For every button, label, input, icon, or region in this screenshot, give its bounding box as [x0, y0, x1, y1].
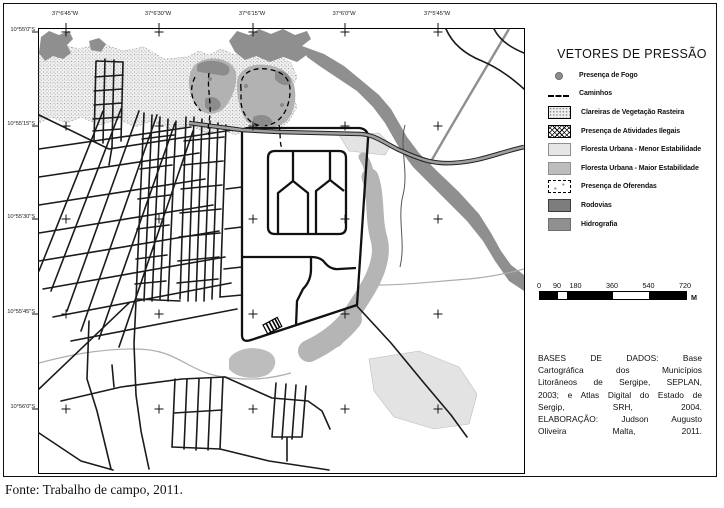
credit-line: Litorâneos de Sergipe, SEPLAN, [538, 376, 702, 388]
source-note: Fonte: Trabalho de campo, 2011. [5, 482, 183, 498]
axis-label-latitude: 10°55'0"S [2, 27, 35, 33]
medium-gray-swatch-icon [548, 162, 571, 175]
data-sources-text: BASES DE DADOS: Base Cartográfica dos Mu… [538, 352, 702, 437]
dashed-box-swatch-icon [548, 180, 571, 193]
legend-item-label: Floresta Urbana - Menor Estabilidade [581, 146, 701, 153]
credit-line: BASES DE DADOS: Base [538, 352, 702, 364]
legend-item-label: Rodovias [581, 202, 612, 209]
legend-item-hidrografia: Hidrografia [548, 215, 716, 234]
scale-bar: 0 90 180 360 540 720 M [539, 281, 709, 300]
light-gray-swatch-icon [548, 143, 571, 156]
map-canvas [38, 28, 525, 474]
credit-line: ELABORAÇÃO: Judson Augusto [538, 413, 702, 425]
axis-label-longitude: 37°6'45"W [35, 11, 95, 17]
legend-item-rodovias: Rodovias [548, 196, 716, 215]
legend-item-label: Presença de Atividades Ilegais [581, 128, 680, 135]
scale-tick-label: 360 [601, 281, 623, 290]
legend-item-label: Hidrografia [581, 221, 617, 228]
axis-label-latitude: 10°55'45"S [2, 309, 35, 315]
scale-bar-labels: 0 90 180 360 540 720 [539, 281, 709, 290]
scale-segment [649, 292, 686, 299]
legend-item-clareiras: Clareiras de Vegetação Rasteira [548, 103, 716, 122]
axis-label-longitude: 37°6'15"W [222, 11, 282, 17]
axis-label-latitude: 10°55'30"S [2, 214, 35, 220]
scale-tick-label: 720 [674, 281, 696, 290]
legend-item-fogo: Presença de Fogo [548, 66, 716, 85]
credit-line: Sergip, SRH, 2004. [538, 401, 702, 413]
dark-gray-swatch-icon [548, 199, 571, 212]
scale-segment [558, 292, 567, 299]
scale-segment [613, 292, 650, 299]
dashed-line-icon [548, 95, 569, 97]
map-artwork [39, 29, 524, 473]
axis-label-longitude: 37°6'30"W [128, 11, 188, 17]
axis-label-latitude: 10°55'15"S [2, 121, 35, 127]
axis-label-longitude: 37°5'45"W [407, 11, 467, 17]
credit-line: Cartográfica dos Municípios [538, 364, 702, 376]
credit-line: 2003; e Atlas Digital do Estado de [538, 389, 702, 401]
credit-line: Oliveira Malta, 2011. [538, 425, 702, 437]
scale-segment [567, 292, 613, 299]
axis-label-longitude: 37°6'0"W [314, 11, 374, 17]
legend-item-floresta-menor: Floresta Urbana - Menor Estabilidade [548, 140, 716, 159]
scale-tick-label: 540 [638, 281, 660, 290]
legend-item-atividades-ilegais: Presença de Atividades Ilegais [548, 122, 716, 141]
figure-canvas: 37°6'45"W 37°6'30"W 37°6'15"W 37°6'0"W 3… [0, 0, 724, 508]
stipple-swatch-icon [548, 106, 571, 119]
legend-item-label: Presença de Fogo [579, 72, 638, 79]
legend-item-oferendas: Presença de Oferendas [548, 178, 716, 197]
legend-item-label: Clareiras de Vegetação Rasteira [581, 109, 684, 116]
legend-title: VETORES DE PRESSÃO [552, 47, 712, 61]
scale-bar-segments [539, 291, 687, 300]
legend-item-label: Floresta Urbana - Maior Estabilidade [581, 165, 699, 172]
scale-tick-label: 180 [565, 281, 587, 290]
scale-segment [540, 292, 558, 299]
legend: Presença de Fogo Caminhos Clareiras de V… [548, 66, 716, 233]
legend-item-label: Presença de Oferendas [581, 183, 657, 190]
gray-swatch-icon [548, 218, 571, 231]
legend-item-caminhos: Caminhos [548, 85, 716, 104]
scale-unit-label: M [691, 293, 697, 302]
legend-item-floresta-maior: Floresta Urbana - Maior Estabilidade [548, 159, 716, 178]
axis-label-latitude: 10°56'0"S [2, 404, 35, 410]
legend-item-label: Caminhos [579, 90, 612, 97]
crosshatch-swatch-icon [548, 125, 571, 138]
fire-dot-icon [548, 70, 569, 81]
